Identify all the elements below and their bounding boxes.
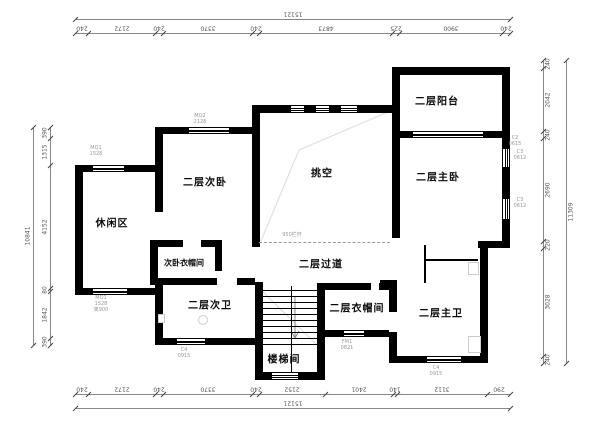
room-label-master-bedroom: 二层主卧 [416, 169, 460, 184]
window-mullion [413, 135, 483, 136]
window-icon [315, 105, 330, 113]
window-tag-line: 0821 [341, 346, 354, 352]
wall [215, 247, 222, 271]
window-tag: C40915 [178, 348, 191, 360]
wall [389, 280, 397, 312]
window-icon [412, 131, 484, 138]
right-dimension-dim: 240 [545, 129, 552, 140]
wall [150, 278, 217, 285]
top-dimension-dim: 240 [153, 25, 164, 32]
left-dimension-chain-line [50, 127, 51, 345]
window-mullion [316, 110, 329, 111]
left-dimension-dim: 80 [42, 286, 49, 294]
partition-line [426, 259, 478, 261]
room-label-secondary-bedroom: 二层次卧 [183, 174, 227, 189]
left-dimension-dim: 1842 [42, 307, 49, 322]
dim-tick [31, 343, 37, 349]
wall [392, 67, 400, 138]
wall [150, 240, 158, 285]
wall [125, 165, 155, 172]
wall [252, 105, 260, 247]
window-mullion [291, 108, 304, 109]
wall [330, 105, 340, 113]
window-mullion [93, 169, 124, 170]
wall [389, 356, 426, 363]
window-tag: C40915 [430, 366, 443, 378]
wall [484, 131, 510, 138]
wall [255, 372, 271, 380]
room-label-balcony: 二层阳台 [415, 93, 459, 108]
wall [317, 283, 325, 380]
bottom-dimension-dim: 290 [493, 386, 504, 393]
wall [379, 283, 389, 290]
window-mullion [291, 110, 304, 111]
window-tag: MQ22128 [194, 114, 207, 126]
window-tag-line: 0915 [430, 372, 443, 378]
window-tag: MQ11528 [90, 146, 103, 158]
room-label-void: 挑空 [311, 165, 333, 180]
window-mullion [189, 131, 229, 132]
top-dimension-dim: 2172 [114, 25, 129, 32]
window-icon [271, 372, 299, 380]
window-mullion [177, 342, 205, 343]
bottom-dimension-dim: 2401 [351, 386, 366, 393]
right-dimension-dim: 240 [545, 58, 552, 69]
window-icon [502, 198, 510, 220]
right-dimension-dim: 2690 [545, 182, 552, 197]
window-mullion [93, 292, 127, 293]
top-dimension-dim: 240 [250, 25, 261, 32]
top-dimension-total: 15121 [283, 11, 302, 18]
right-dimension-dim: 240 [545, 354, 552, 365]
dim-tick [508, 17, 514, 23]
window-tag-line: 0615 [509, 142, 522, 148]
wall [75, 288, 92, 295]
wall [155, 127, 188, 134]
window-tag-line: 0612 [514, 204, 527, 210]
window-mullion [507, 199, 508, 219]
top-dimension-dim: 3900 [443, 25, 458, 32]
wall [392, 67, 510, 75]
window-icon [343, 330, 365, 337]
dim-tick [508, 406, 514, 412]
wall [128, 288, 155, 295]
wall [299, 372, 325, 380]
wall [392, 138, 400, 238]
room-label-secondary-closet: 次卧衣帽间 [164, 258, 204, 269]
left-dimension-dim: 390 [42, 127, 49, 138]
wall [478, 241, 510, 248]
window-tag: C30612 [514, 150, 527, 162]
window-tag-line: 0612 [514, 156, 527, 162]
wall [325, 283, 371, 290]
floor-plan-canvas: 950栏杆二层阳台二层主卧挑空二层次卧休闲区次卧衣帽间二层过道二层次卫二层衣帽间… [0, 0, 600, 446]
partition-line [424, 245, 426, 283]
right-dimension-dim: 3028 [545, 294, 552, 309]
left-dimension-dim: 1315 [42, 144, 49, 159]
wall [365, 330, 389, 337]
bath-fixture [468, 336, 481, 353]
room-label-master-bath: 二层主卫 [419, 305, 463, 320]
wall [480, 248, 488, 363]
top-dimension-dim: 240 [76, 25, 87, 32]
window-tag-line: 1528 [90, 152, 103, 158]
wall [237, 278, 255, 285]
window-tag: C30612 [514, 198, 527, 210]
bottom-dimension-dim: 240 [76, 386, 87, 393]
window-mullion [316, 108, 329, 109]
railing-note: 950栏杆 [282, 233, 302, 239]
top-dimension-chain-line [75, 33, 510, 34]
right-dimension-dim: 2042 [545, 92, 552, 107]
window-tag-line: 2128 [194, 120, 207, 126]
wall [502, 168, 510, 198]
bottom-dimension-chain-line [75, 394, 510, 395]
window-tag: MQ11528离900 [94, 296, 109, 313]
window-icon [188, 127, 230, 134]
bottom-dimension-dim: 3112 [434, 386, 449, 393]
room-label-cloakroom: 二层衣帽间 [330, 300, 385, 315]
bottom-dimension-total-line [75, 408, 510, 409]
window-tag-line: 离900 [94, 308, 109, 314]
window-tag-line: 0915 [178, 354, 191, 360]
window-icon [92, 165, 125, 172]
dim-tick [508, 392, 514, 398]
window-mullion [272, 375, 298, 376]
window-icon [502, 148, 510, 168]
bath-fixture [468, 262, 479, 275]
window-tag: FM10821 [341, 340, 354, 352]
window-mullion [505, 149, 506, 167]
top-dimension-total-line [75, 19, 510, 20]
window-icon [176, 338, 206, 345]
window-mullion [344, 334, 364, 335]
bottom-dimension-total: 15121 [283, 400, 302, 407]
wall [392, 131, 412, 138]
window-mullion [507, 149, 508, 167]
wall [325, 330, 343, 337]
right-dimension-total: 11309 [568, 202, 575, 221]
wall [252, 105, 290, 113]
window-mullion [272, 377, 298, 378]
window-icon [290, 105, 305, 113]
bottom-dimension-dim: 3370 [200, 386, 215, 393]
left-dimension-dim: 390 [42, 336, 49, 347]
wall [389, 332, 397, 356]
left-dimension-total-line [33, 127, 34, 345]
right-dimension-dim: 220 [545, 239, 552, 250]
window-mullion [427, 360, 461, 361]
window-mullion [341, 110, 357, 111]
bath-fixture [158, 314, 165, 323]
window-mullion [505, 199, 506, 219]
wall [75, 165, 92, 172]
room-label-leisure-area: 休闲区 [96, 215, 129, 230]
window-tag: C20615 [509, 136, 522, 148]
wall [155, 127, 163, 212]
top-dimension-dim: 240 [500, 25, 511, 32]
window-mullion [341, 108, 357, 109]
bottom-dimension-dim: 2152 [284, 386, 299, 393]
window-icon [340, 105, 358, 113]
wall [358, 105, 392, 113]
wall [462, 356, 487, 363]
wall [255, 282, 263, 378]
dim-tick [48, 343, 54, 349]
wall [305, 105, 315, 113]
top-dimension-dim: 4873 [318, 25, 333, 32]
top-dimension-dim: 225 [390, 25, 401, 32]
stair-treads [263, 290, 317, 345]
left-dimension-dim: 4152 [42, 219, 49, 234]
wall [75, 165, 83, 295]
room-label-stairwell: 楼梯间 [268, 351, 301, 366]
bottom-dimension-dim: 140 [389, 386, 400, 393]
room-label-corridor: 二层过道 [299, 256, 343, 271]
wall [206, 338, 255, 345]
room-label-secondary-bath: 二层次卫 [188, 297, 232, 312]
left-dimension-total: 10841 [25, 226, 32, 245]
window-icon [426, 356, 462, 363]
dim-tick [564, 361, 570, 367]
dim-tick [508, 31, 514, 37]
wall [201, 240, 222, 247]
window-icon [92, 288, 128, 295]
bottom-dimension-dim: 240 [153, 386, 164, 393]
top-dimension-dim: 3370 [200, 25, 215, 32]
bottom-dimension-dim: 240 [250, 386, 261, 393]
bottom-dimension-dim: 2172 [114, 386, 129, 393]
railing-dashed-line [259, 242, 390, 243]
